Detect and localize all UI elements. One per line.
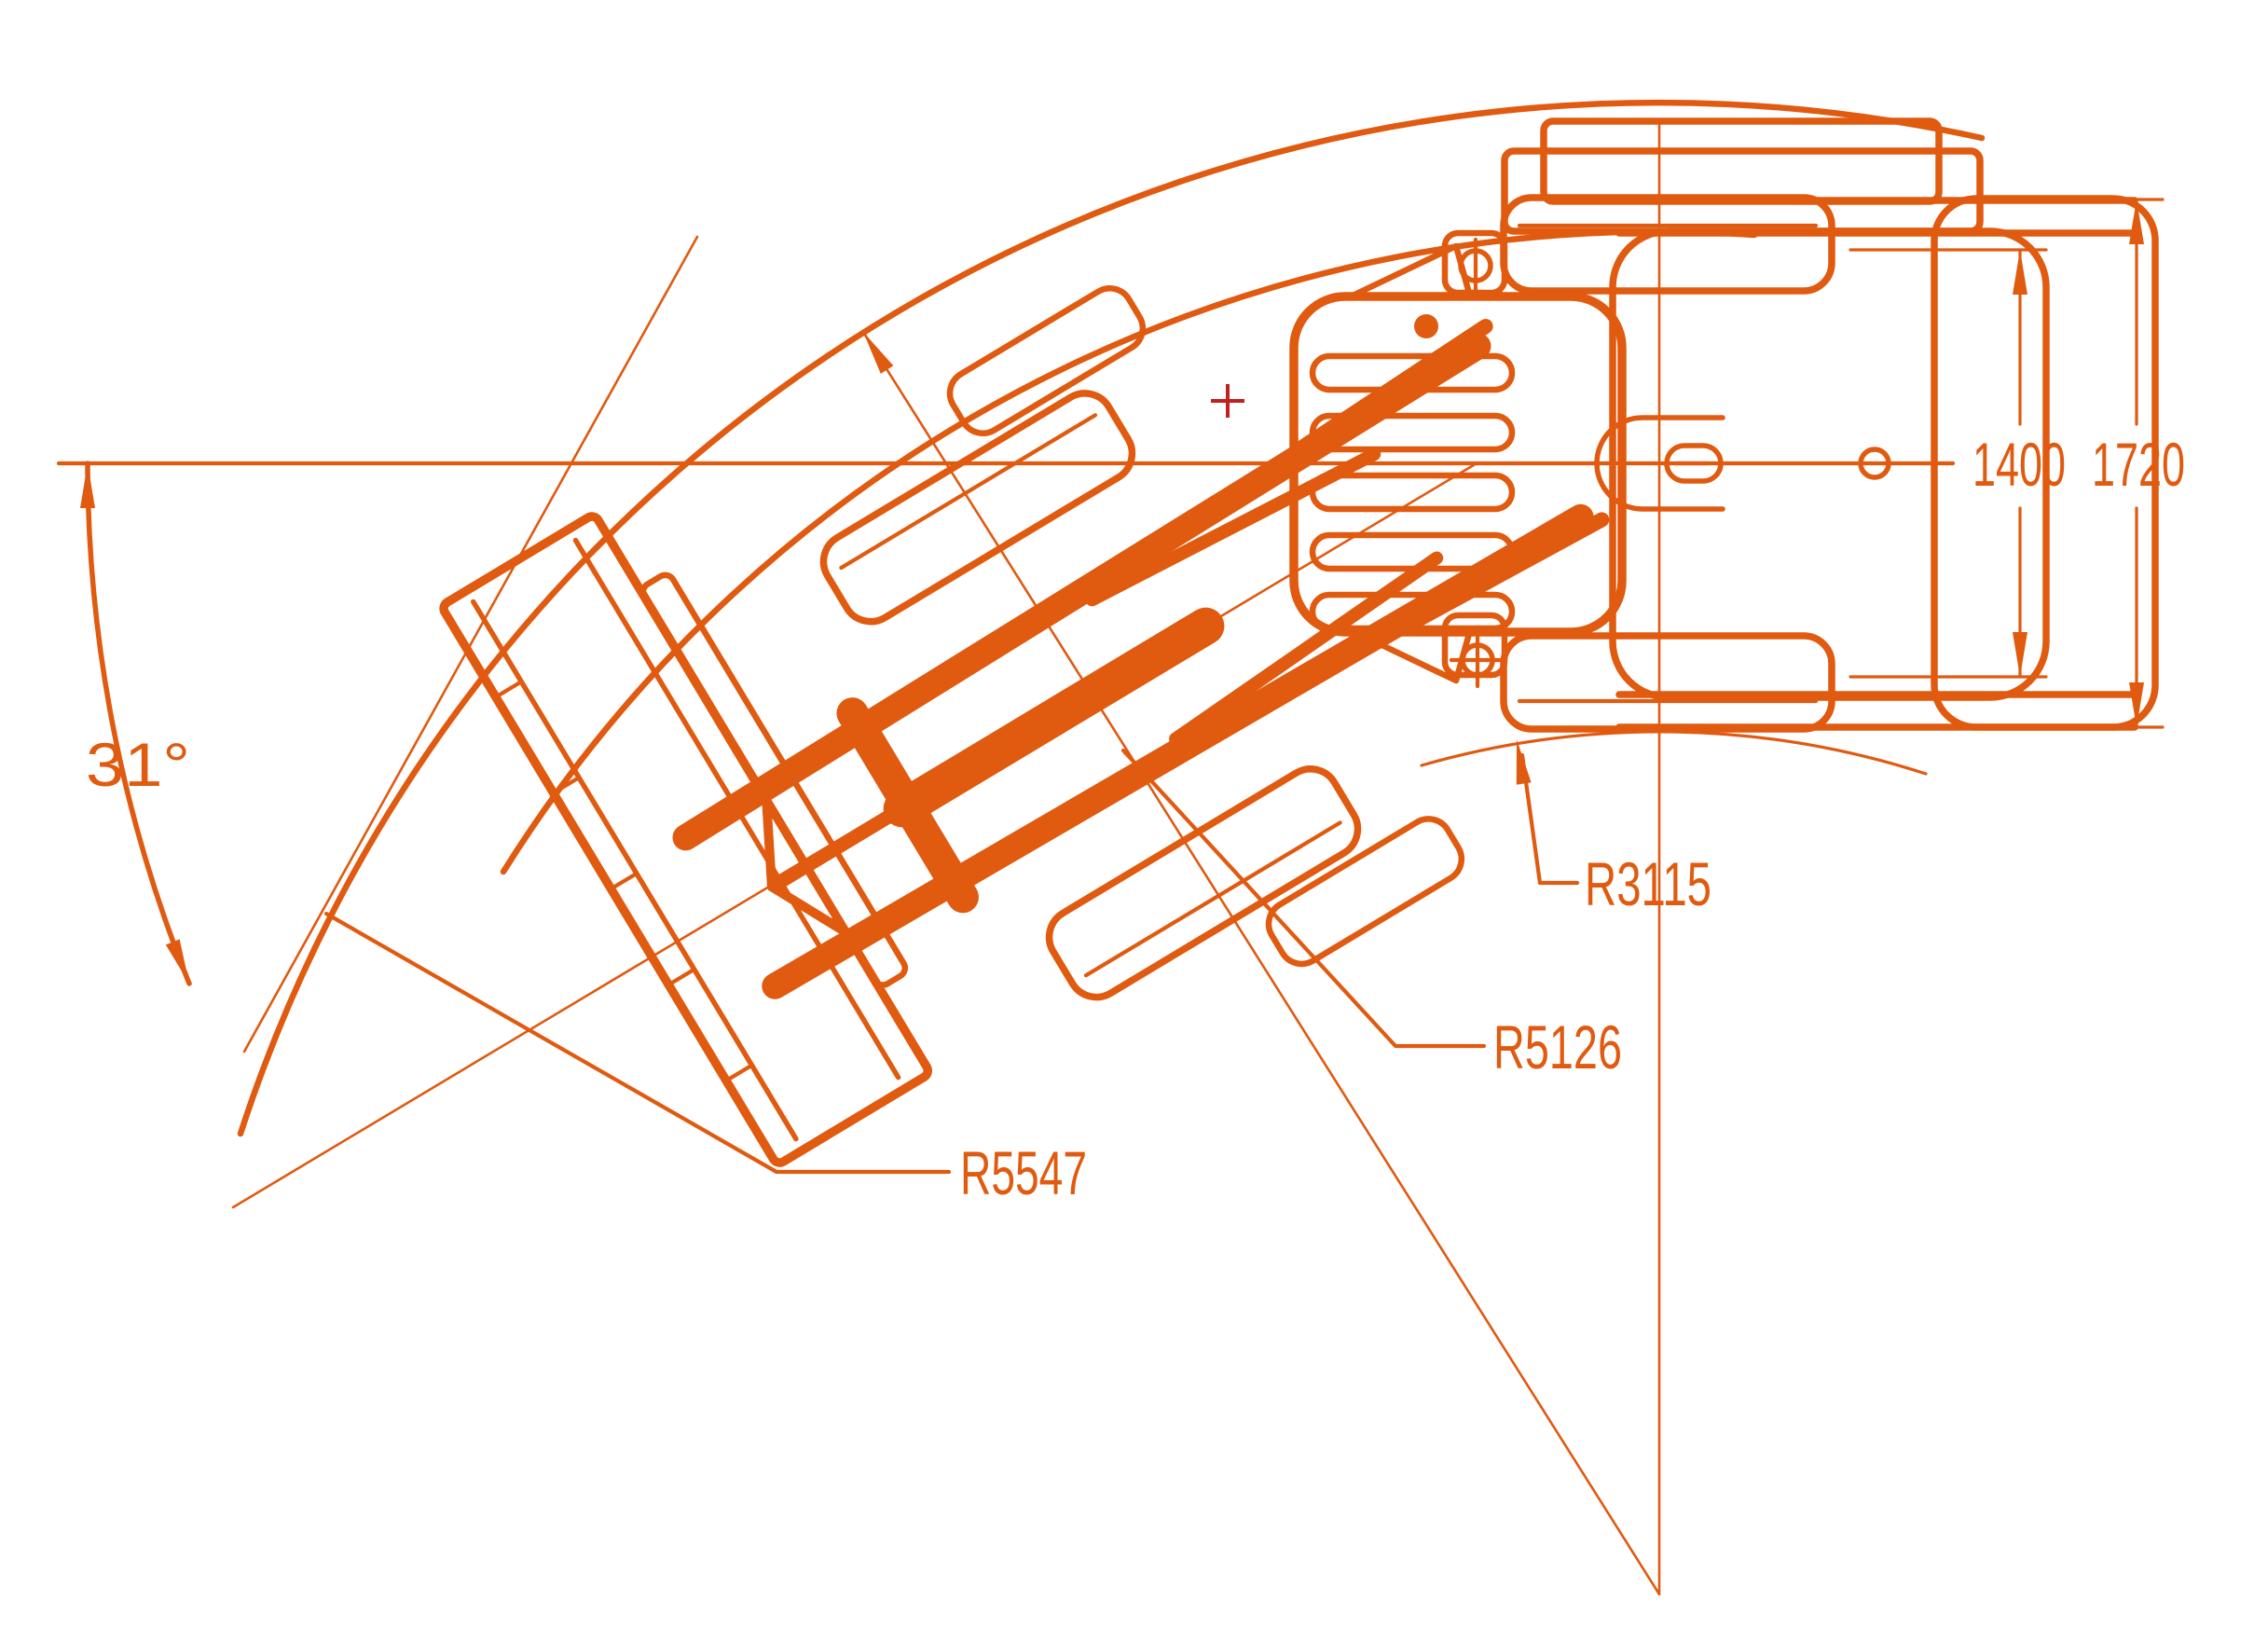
rear-tire-top xyxy=(1504,198,1832,291)
inner-turning-arc-r3115 xyxy=(1422,732,1926,774)
leader-r5126: R5126 xyxy=(1123,750,1622,1081)
technical-drawing-canvas: 31° xyxy=(0,0,2254,1652)
outer-turning-arc-r5547 xyxy=(241,103,1982,1134)
grille-slot xyxy=(1313,475,1512,509)
dim-arrow-down-icon xyxy=(2013,632,2027,677)
loader-turning-radius-diagram: 31° xyxy=(0,0,2254,1652)
dim-arrow-up-icon xyxy=(2013,250,2027,295)
overall-width-value: 1720 xyxy=(2092,430,2185,499)
angle-arrow-bottom-icon xyxy=(166,939,189,984)
cad-origin-marker-icon xyxy=(1211,384,1244,418)
bucket-bolt-ticks xyxy=(496,681,752,1081)
track-width-value: 1400 xyxy=(1972,430,2066,499)
angle-arc xyxy=(88,463,189,984)
leader-r5547: R5547 xyxy=(326,914,1087,1207)
front-axle-line xyxy=(244,237,697,1052)
articulation-angle-dimension: 31° xyxy=(80,463,190,984)
leader-r3115: R3115 xyxy=(1517,739,1711,918)
rear-tire-bottom xyxy=(1504,636,1832,729)
canopy-base-panel xyxy=(1505,151,1980,231)
radius-label-r5547: R5547 xyxy=(960,1138,1087,1207)
frame-fork-plate-right xyxy=(1409,512,1601,633)
hood-bolt-dot xyxy=(1414,314,1438,338)
radius-label-r5126: R5126 xyxy=(1493,1012,1622,1081)
turning-arcs xyxy=(241,103,1982,1134)
angle-label: 31° xyxy=(86,730,190,799)
outer-radius-arrow-icon xyxy=(863,332,893,374)
leader-line-r5126 xyxy=(1123,750,1484,1046)
outer-radius-ray xyxy=(863,332,1659,1594)
lift-cylinder-right xyxy=(1165,558,1448,739)
bucket-back-wall-line xyxy=(575,541,898,1078)
front-fender-right xyxy=(1260,811,1470,972)
leader-line-r3115 xyxy=(1522,755,1577,883)
canopy-top-panel xyxy=(1544,121,1939,201)
radius-label-r3115: R3115 xyxy=(1585,849,1711,918)
leader-arrow-r3115-icon xyxy=(1517,739,1532,785)
angle-arrow-top-icon xyxy=(80,463,95,508)
tilt-cylinder-barrel xyxy=(902,626,1206,809)
front-tire-left-tread-line xyxy=(841,415,1095,568)
boom-arm-right xyxy=(775,506,1580,998)
